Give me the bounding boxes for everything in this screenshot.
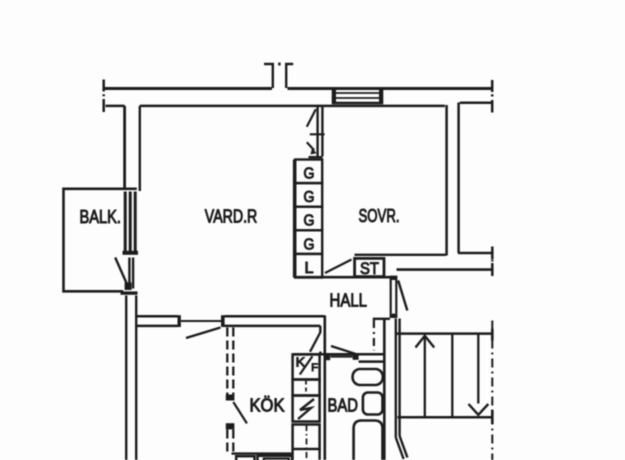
svg-text:BAD: BAD (328, 396, 359, 416)
svg-text:L: L (305, 260, 314, 277)
svg-text:F: F (311, 362, 318, 374)
svg-text:G: G (304, 236, 315, 253)
svg-text:G: G (304, 213, 315, 230)
svg-text:ST: ST (360, 259, 379, 278)
svg-text:KÖK: KÖK (250, 396, 285, 416)
svg-text:G: G (304, 189, 315, 206)
svg-text:G: G (304, 166, 315, 183)
svg-text:SOVR.: SOVR. (359, 206, 400, 226)
svg-text:BALK.: BALK. (80, 207, 122, 227)
svg-text:HALL: HALL (330, 290, 368, 310)
svg-text:VARD.R: VARD.R (205, 206, 257, 226)
